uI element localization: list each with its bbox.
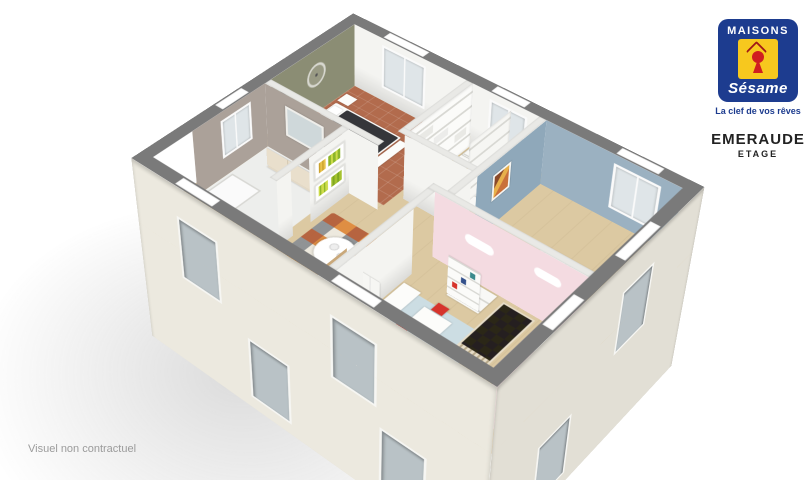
floorplan-viewport: [0, 0, 811, 480]
logo-yellow-square: [738, 39, 778, 79]
floorplan-3d-scene: [139, 75, 693, 455]
page: MAISONS Sésame La clef de vos rêves EMER…: [0, 0, 811, 480]
window-slot: [384, 33, 430, 57]
partition-top: [398, 127, 485, 175]
model-name: EMERAUDE: [700, 131, 811, 148]
partition-top: [447, 116, 546, 194]
logo-brand-top: MAISONS: [727, 25, 789, 37]
facade-window: [379, 427, 427, 480]
logo-brand-bottom: Sésame: [728, 80, 788, 97]
facade-window: [613, 262, 654, 356]
window-slot: [491, 86, 530, 107]
floor-label: ETAGE: [700, 149, 811, 159]
partition-top: [428, 183, 595, 277]
logo-tagline: La clef de vos rêves: [700, 106, 811, 116]
facade-window: [330, 314, 377, 408]
keyhole-stem-icon: [753, 59, 763, 73]
facade-window: [531, 413, 571, 480]
disclaimer-text: Visuel non contractuel: [28, 443, 136, 455]
partition-top: [329, 188, 435, 271]
partition-top: [270, 126, 349, 182]
facade-window: [177, 216, 222, 304]
maisons-sesame-logo: MAISONS Sésame: [718, 19, 798, 102]
window-slot: [616, 148, 664, 174]
cut-wall-top: [143, 19, 355, 157]
